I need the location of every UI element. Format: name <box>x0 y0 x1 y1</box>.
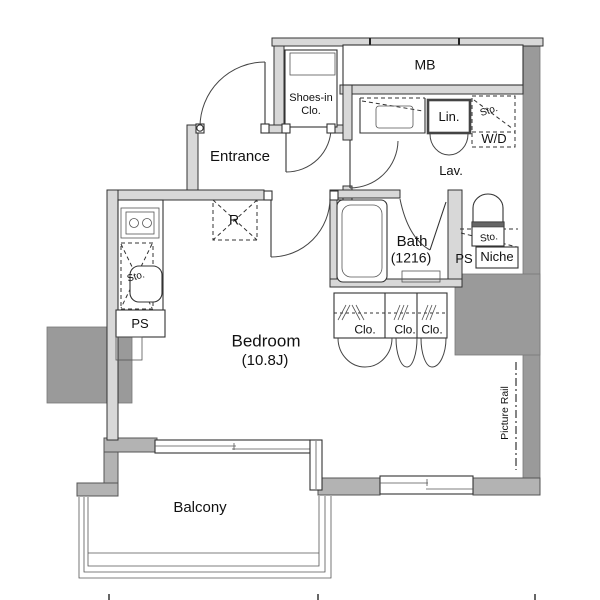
bedroom-window-south-left <box>155 440 310 453</box>
hall-south-wall <box>107 190 264 200</box>
window-corner-panel <box>310 440 322 490</box>
floor-plan: MB Shoes-in Clo. Entrance Lin. Sto. W/D … <box>0 0 600 600</box>
label-closet-1: Clo. <box>354 323 375 336</box>
bedroom-window-south-right <box>380 476 473 494</box>
label-washer-dryer: W/D <box>481 132 506 146</box>
label-bath: Bath <box>397 234 428 251</box>
vanity <box>360 98 425 133</box>
entry-door <box>200 62 265 127</box>
bath-west-wall <box>330 190 337 283</box>
label-linen: Lin. <box>439 110 460 124</box>
lav-west-wall <box>343 85 352 140</box>
label-niche: Niche <box>480 250 513 264</box>
mb-south-wall <box>340 85 523 94</box>
door-hinge-mark <box>197 125 203 131</box>
bath-north-wall <box>330 190 400 198</box>
label-meter-box: MB <box>415 57 436 72</box>
label-pipe-space-right: PS <box>455 252 472 266</box>
label-closet-3: Clo. <box>421 323 442 336</box>
label-entrance: Entrance <box>210 149 270 166</box>
toilet-bowl <box>473 194 503 224</box>
east-wall <box>523 44 540 495</box>
label-bedroom: Bedroom <box>232 333 301 352</box>
label-closet-2: Clo. <box>394 323 415 336</box>
linen-closet-doors <box>430 134 468 155</box>
label-refrigerator: R <box>229 212 239 227</box>
dimension-ticks <box>109 594 535 600</box>
label-bath-size: (1216) <box>391 250 431 265</box>
floor-plan-linework <box>0 0 600 600</box>
label-shoes-closet-2: Clo. <box>301 105 321 117</box>
label-pipe-space-left: PS <box>131 317 148 331</box>
label-shoes-closet-1: Shoes-in <box>289 92 332 104</box>
bath-east-wall <box>448 190 462 283</box>
label-picture-rail: Picture Rail <box>500 386 512 440</box>
neighbor-block <box>47 327 132 403</box>
label-lavatory: Lav. <box>439 164 463 178</box>
label-balcony: Balcony <box>173 500 226 517</box>
lavatory-door <box>350 140 398 188</box>
east-wall-block <box>455 274 540 355</box>
label-bedroom-size: (10.8J) <box>242 353 289 370</box>
shoes-closet-door <box>286 128 331 172</box>
bedroom-door <box>271 198 330 257</box>
shoes-west-wall <box>274 46 284 133</box>
entrance-west-wall <box>187 125 198 200</box>
